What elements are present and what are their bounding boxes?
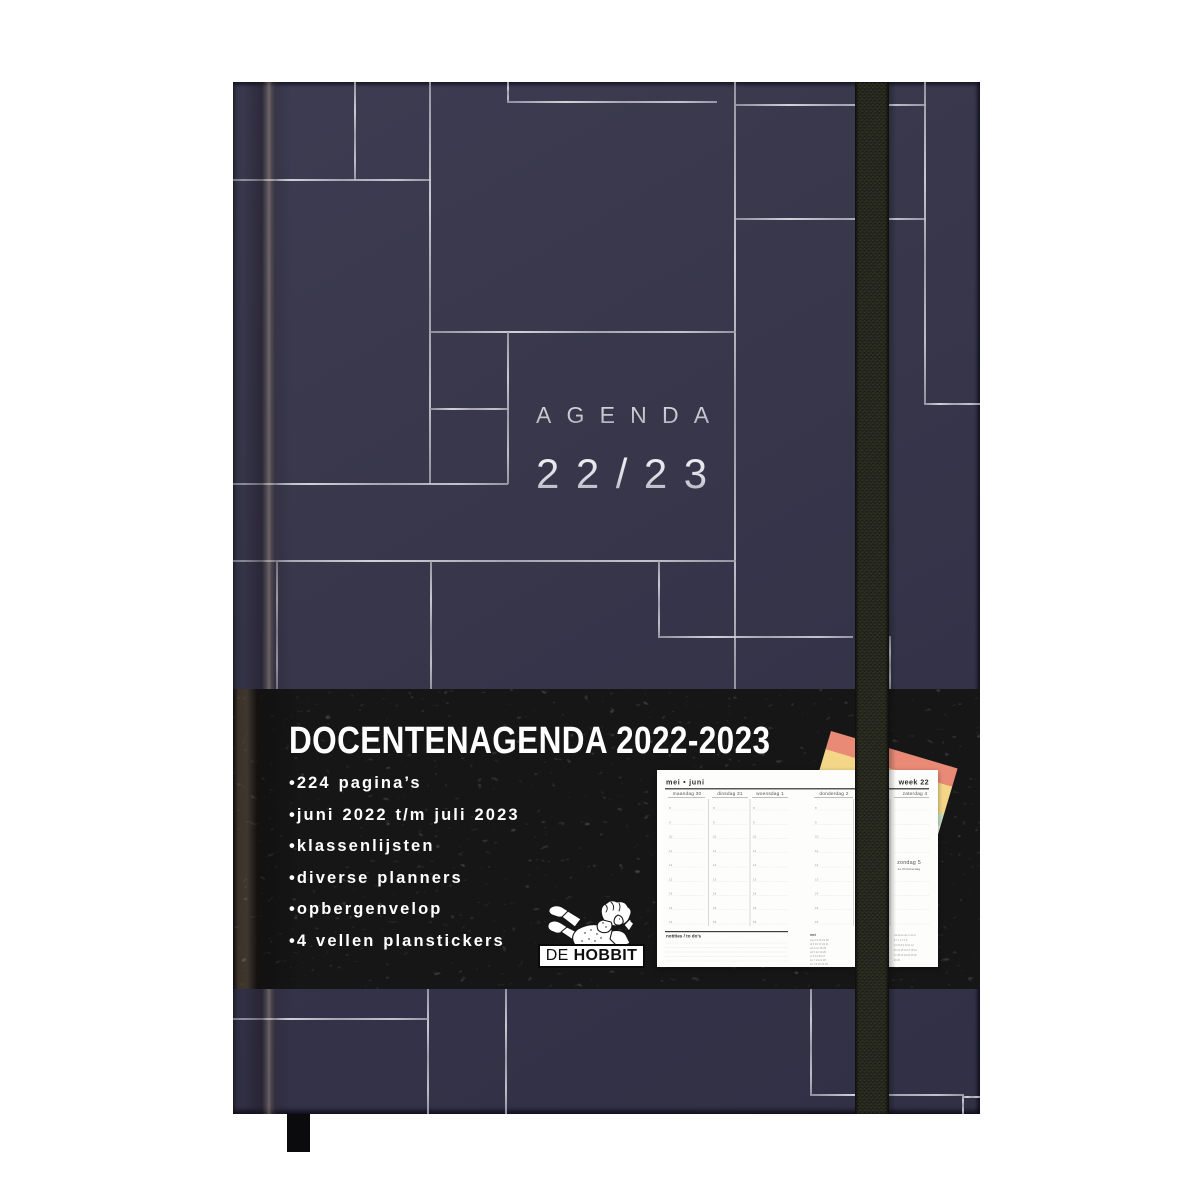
svg-text:11: 11 xyxy=(753,849,756,853)
svg-text:donderdag 2: donderdag 2 xyxy=(819,791,848,797)
svg-text:15: 15 xyxy=(713,906,717,910)
svg-text:do 5 12 19 26: do 5 12 19 26 xyxy=(810,950,826,954)
svg-text:9: 9 xyxy=(669,820,671,824)
svg-text:10: 10 xyxy=(713,835,717,839)
svg-text:10: 10 xyxy=(815,835,819,839)
svg-text:8: 8 xyxy=(669,806,671,810)
svg-text:14: 14 xyxy=(669,892,673,896)
svg-text:13 14 8 9 10 11 12: 13 14 8 9 10 11 12 xyxy=(894,944,914,947)
svg-text:15: 15 xyxy=(753,906,757,910)
svg-text:maandag 30: maandag 30 xyxy=(673,791,702,797)
svg-text:11: 11 xyxy=(815,849,818,853)
svg-text:9: 9 xyxy=(753,820,755,824)
svg-text:13: 13 xyxy=(753,877,757,881)
svg-text:vr 6 13 20 27: vr 6 13 20 27 xyxy=(810,954,826,958)
svg-text:week 22: week 22 xyxy=(898,778,929,787)
svg-text:16: 16 xyxy=(815,920,819,924)
svg-text:8: 8 xyxy=(753,806,755,810)
svg-text:15: 15 xyxy=(815,906,819,910)
svg-text:zo 1 8 15 22 29: zo 1 8 15 22 29 xyxy=(810,962,828,966)
svg-text:9: 9 xyxy=(713,820,715,824)
svg-text:16: 16 xyxy=(713,920,717,924)
svg-text:14: 14 xyxy=(713,892,717,896)
svg-text:woensdag 1: woensdag 1 xyxy=(756,791,784,797)
svg-text:15: 15 xyxy=(669,906,673,910)
svg-text:10: 10 xyxy=(669,835,673,839)
svg-text:11: 11 xyxy=(669,849,672,853)
svg-text:10: 10 xyxy=(753,835,757,839)
svg-text:zondag 5: zondag 5 xyxy=(897,860,921,866)
svg-text:12: 12 xyxy=(669,863,673,867)
svg-text:za 7 14 21 28: za 7 14 21 28 xyxy=(810,958,826,962)
svg-text:16: 16 xyxy=(669,920,673,924)
svg-text:ma di wo do vr za zo: ma di wo do vr za zo xyxy=(894,934,917,937)
svg-text:wo 4 11 18 25: wo 4 11 18 25 xyxy=(810,946,827,950)
svg-text:13: 13 xyxy=(669,877,673,881)
svg-text:11: 11 xyxy=(713,849,716,853)
svg-text:14: 14 xyxy=(753,892,757,896)
svg-text:8: 8 xyxy=(713,806,715,810)
svg-text:14: 14 xyxy=(815,892,819,896)
svg-text:mei • juni: mei • juni xyxy=(666,778,705,787)
svg-text:16: 16 xyxy=(753,920,757,924)
svg-text:1e Pinksterdag: 1e Pinksterdag xyxy=(898,867,921,871)
svg-text:di 3 10 17 24 31: di 3 10 17 24 31 xyxy=(810,942,829,946)
svg-text:13: 13 xyxy=(713,877,717,881)
svg-text:9: 9 xyxy=(815,820,817,824)
svg-text:mei: mei xyxy=(810,933,816,937)
svg-text:6 7 1 2 3 4 5: 6 7 1 2 3 4 5 xyxy=(894,939,908,942)
svg-text:notities / to do’s: notities / to do’s xyxy=(666,934,701,939)
svg-text:zaterdag 4: zaterdag 4 xyxy=(903,791,928,797)
svg-text:27 28 22 23 24 25 26: 27 28 22 23 24 25 26 xyxy=(894,954,917,957)
svg-text:12: 12 xyxy=(713,863,717,867)
svg-text:12: 12 xyxy=(815,863,819,867)
svg-text:20 21 15 16 17 18 19: 20 21 15 16 17 18 19 xyxy=(894,949,917,952)
svg-text:ma 2 9 16 23 30: ma 2 9 16 23 30 xyxy=(810,938,829,942)
svg-text:dinsdag 31: dinsdag 31 xyxy=(717,791,743,797)
svg-text:13: 13 xyxy=(815,877,819,881)
svg-text:12: 12 xyxy=(753,863,757,867)
svg-text:8: 8 xyxy=(815,806,817,810)
